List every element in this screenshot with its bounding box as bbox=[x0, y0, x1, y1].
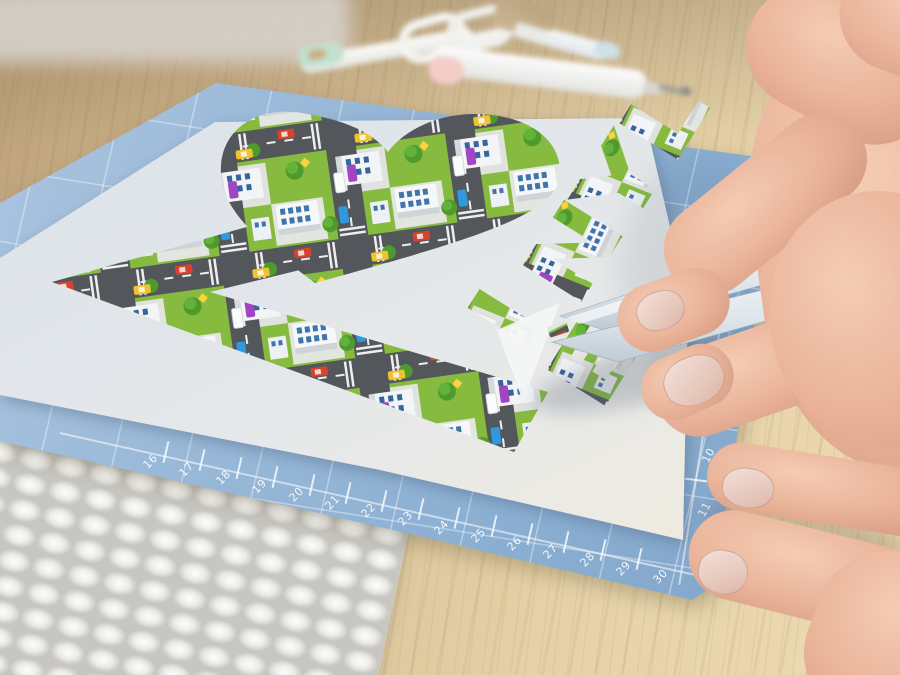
ruler-tick bbox=[454, 507, 461, 529]
ruler-tick bbox=[308, 474, 315, 496]
craft-scene: 161718192021222324252627282930 891011 bbox=[0, 0, 900, 675]
ruler-tick bbox=[272, 466, 279, 488]
ruler-tick bbox=[417, 498, 424, 520]
ruler-tick bbox=[381, 490, 388, 512]
ruler-tick bbox=[199, 449, 206, 471]
ruler-tick bbox=[235, 457, 242, 479]
ruler-tick bbox=[599, 539, 606, 561]
ruler-tick bbox=[490, 515, 497, 537]
ruler-tick bbox=[163, 441, 170, 463]
ruler-tick bbox=[563, 531, 570, 553]
ruler-tick bbox=[636, 548, 643, 570]
ruler-tick bbox=[527, 523, 534, 545]
ruler-tick bbox=[345, 482, 352, 504]
